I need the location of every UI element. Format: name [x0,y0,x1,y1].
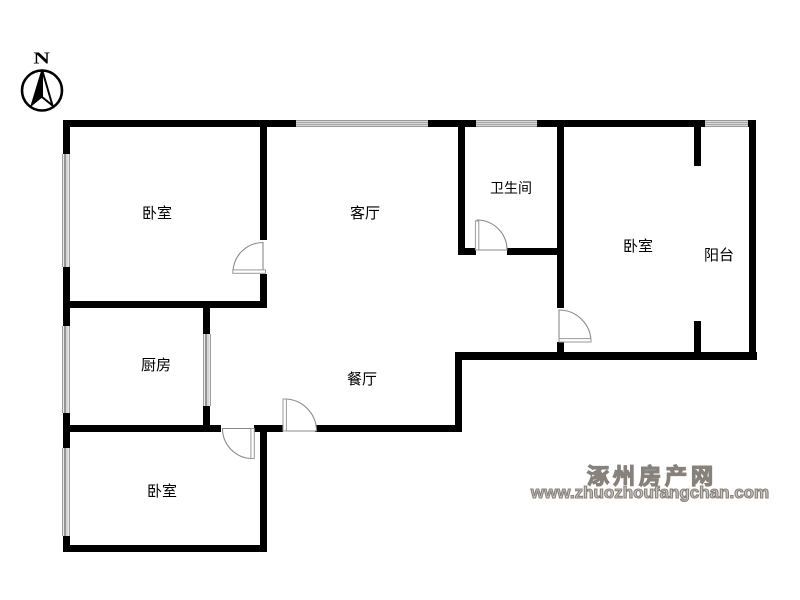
svg-text:N: N [33,49,50,68]
